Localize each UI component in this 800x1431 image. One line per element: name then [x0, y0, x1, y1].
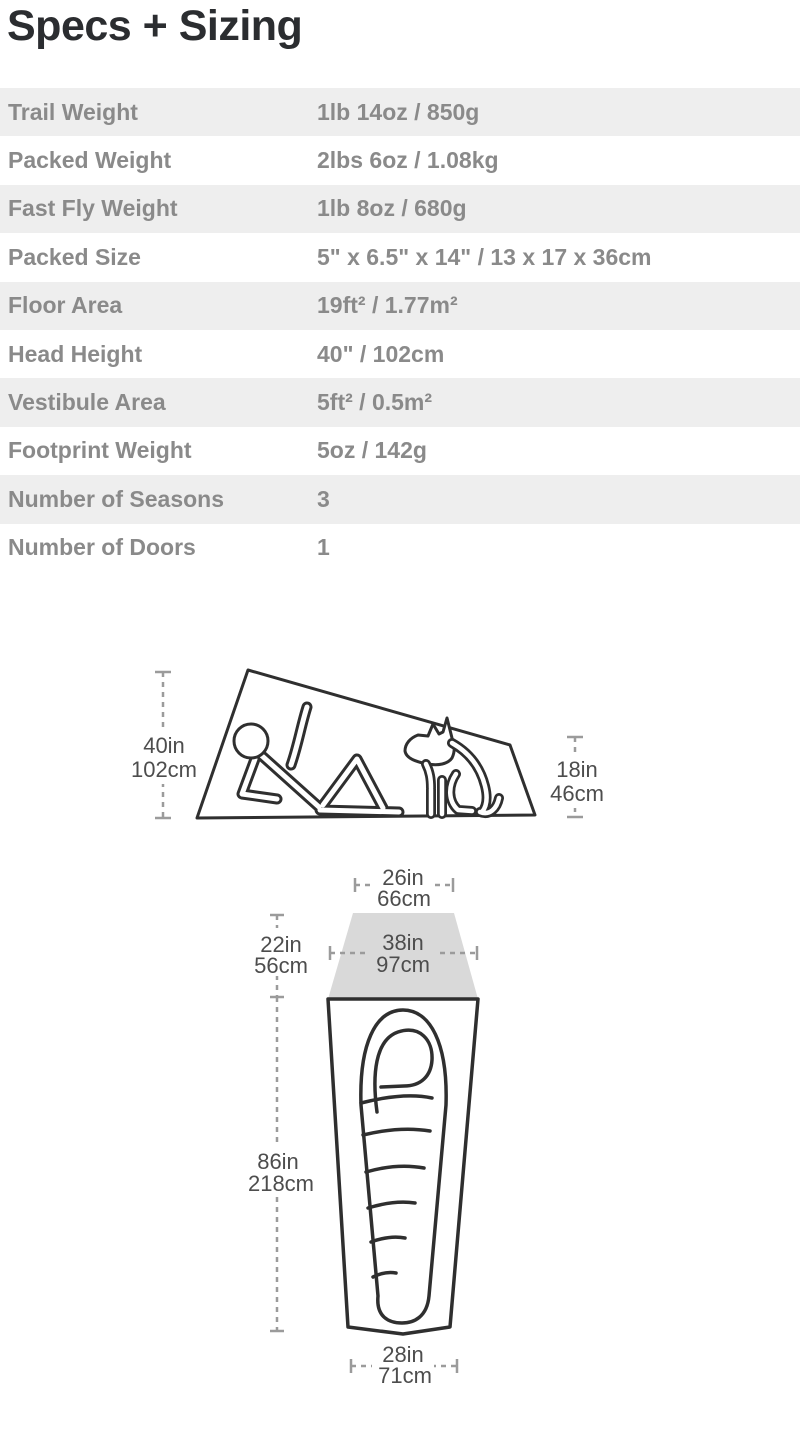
side-foot-height-cm: 46cm	[550, 781, 604, 806]
spec-row-fast-fly-weight: Fast Fly Weight 1lb 8oz / 680g	[0, 185, 800, 233]
side-height-in: 40in	[143, 733, 185, 758]
head-width-cm: 97cm	[376, 952, 430, 977]
side-height-dimension: 40in 102cm	[131, 672, 197, 818]
spec-value: 5oz / 142g	[317, 437, 800, 464]
floor-length-cm: 218cm	[248, 1171, 314, 1196]
spec-row-footprint-weight: Footprint Weight 5oz / 142g	[0, 427, 800, 475]
specs-table: Trail Weight 1lb 14oz / 850g Packed Weig…	[0, 88, 800, 572]
spec-label: Packed Size	[0, 244, 317, 271]
spec-label: Fast Fly Weight	[0, 195, 317, 222]
spec-value: 5" x 6.5" x 14" / 13 x 17 x 36cm	[317, 244, 800, 271]
spec-label: Head Height	[0, 341, 317, 368]
spec-value: 19ft² / 1.77m²	[317, 292, 800, 319]
spec-row-vestibule-area: Vestibule Area 5ft² / 0.5m²	[0, 378, 800, 426]
spec-label: Vestibule Area	[0, 389, 317, 416]
floor-length-dimension: 86in 218cm	[241, 997, 319, 1331]
spec-row-packed-size: Packed Size 5" x 6.5" x 14" / 13 x 17 x …	[0, 233, 800, 281]
spec-value: 1lb 14oz / 850g	[317, 99, 800, 126]
side-foot-height-dimension: 18in 46cm	[545, 737, 609, 817]
spec-value: 5ft² / 0.5m²	[317, 389, 800, 416]
side-height-cm: 102cm	[131, 757, 197, 782]
spec-row-head-height: Head Height 40" / 102cm	[0, 330, 800, 378]
spec-label: Number of Doors	[0, 534, 317, 561]
spec-label: Packed Weight	[0, 147, 317, 174]
spec-row-trail-weight: Trail Weight 1lb 14oz / 850g	[0, 88, 800, 136]
page-title: Specs + Sizing	[7, 2, 302, 51]
spec-value: 1	[317, 534, 800, 561]
tent-side-view-diagram: 40in 102cm 18in 46cm	[0, 648, 800, 853]
spec-label: Trail Weight	[0, 99, 317, 126]
person-head	[234, 724, 268, 758]
side-foot-height-in: 18in	[556, 757, 598, 782]
spec-row-packed-weight: Packed Weight 2lbs 6oz / 1.08kg	[0, 136, 800, 184]
spec-row-number-of-doors: Number of Doors 1	[0, 524, 800, 572]
spec-value: 40" / 102cm	[317, 341, 800, 368]
head-top-width-cm: 66cm	[377, 886, 431, 911]
vestibule-depth-cm: 56cm	[254, 953, 308, 978]
specs-sizing-section: Specs + Sizing Trail Weight 1lb 14oz / 8…	[0, 0, 800, 1431]
spec-row-floor-area: Floor Area 19ft² / 1.77m²	[0, 282, 800, 330]
spec-label: Number of Seasons	[0, 486, 317, 513]
spec-row-number-of-seasons: Number of Seasons 3	[0, 475, 800, 523]
head-top-width-dimension: 26in 66cm	[355, 862, 453, 911]
foot-width-cm: 71cm	[378, 1363, 432, 1388]
spec-value: 1lb 8oz / 680g	[317, 195, 800, 222]
foot-width-dimension: 28in 71cm	[351, 1342, 457, 1389]
tent-floor-plan-diagram: 26in 66cm 38in 97cm 22in 56cm 86in 2	[0, 860, 800, 1400]
spec-value: 3	[317, 486, 800, 513]
vestibule-depth-dimension: 22in 56cm	[248, 915, 312, 997]
spec-label: Floor Area	[0, 292, 317, 319]
spec-value: 2lbs 6oz / 1.08kg	[317, 147, 800, 174]
spec-label: Footprint Weight	[0, 437, 317, 464]
